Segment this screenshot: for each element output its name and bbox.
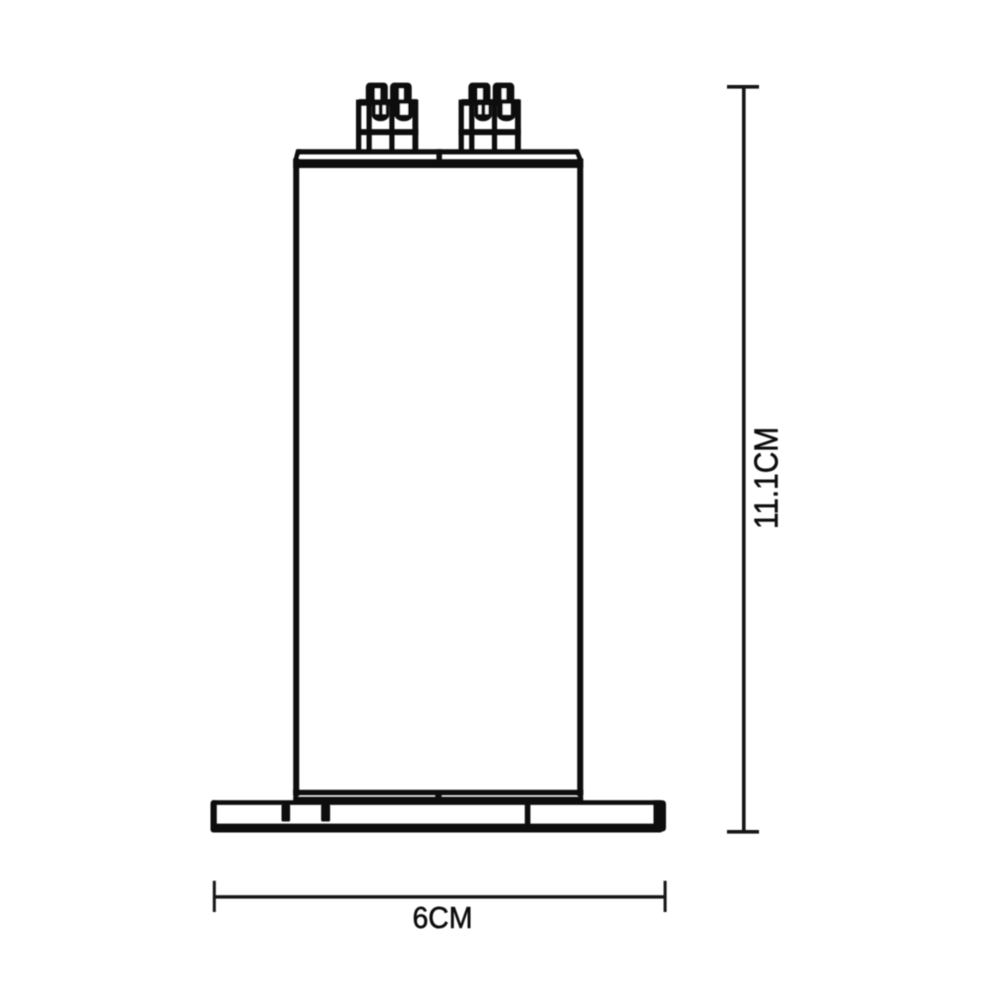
- svg-text:11.1CM: 11.1CM: [748, 427, 785, 529]
- svg-text:6CM: 6CM: [413, 900, 473, 935]
